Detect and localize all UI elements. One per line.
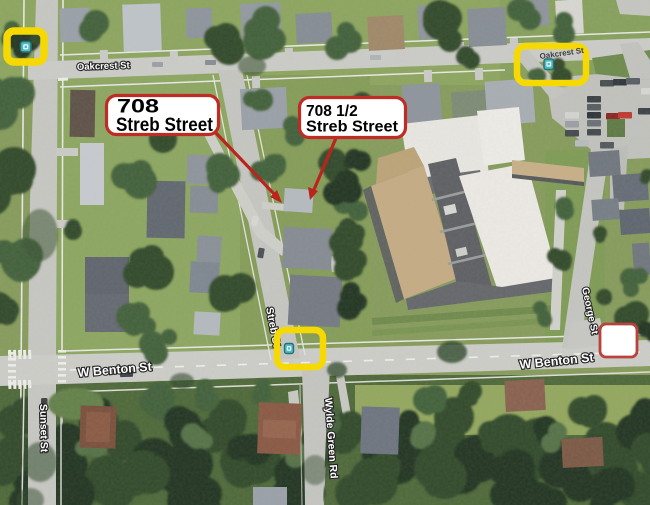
svg-text:Oakcrest St: Oakcrest St [77,60,131,73]
svg-text:Sunset St: Sunset St [37,404,50,453]
svg-text:Streb Street: Streb Street [306,119,398,136]
svg-text:708 1/2: 708 1/2 [306,103,358,120]
svg-text:Streb Street: Streb Street [116,115,214,136]
